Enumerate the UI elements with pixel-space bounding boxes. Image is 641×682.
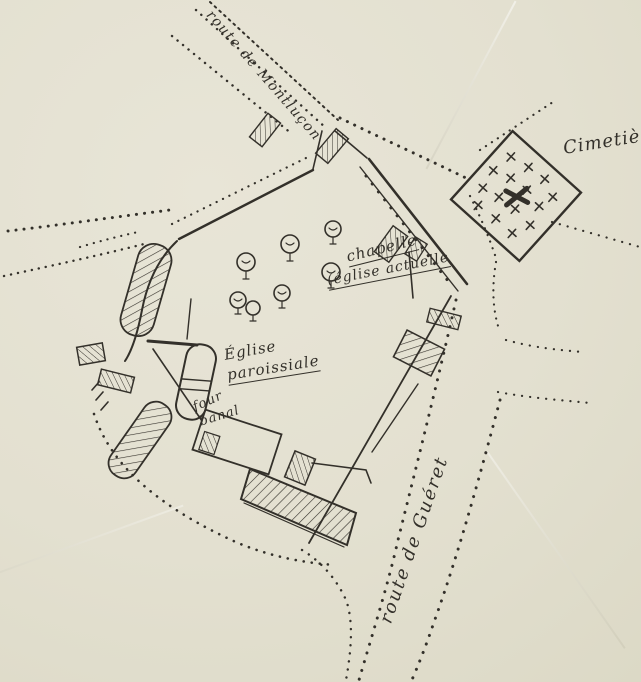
building-east-hut-large xyxy=(393,330,444,376)
building-west-hut-2 xyxy=(98,369,135,393)
road-east-branches xyxy=(493,222,640,403)
tree-icon xyxy=(325,221,341,244)
building-southwest-long xyxy=(103,396,177,484)
building-south-hut xyxy=(285,451,316,485)
building-northeast-hut-1 xyxy=(249,113,280,146)
sketch-map-canvas xyxy=(0,0,641,682)
tree-icon xyxy=(281,235,299,261)
building-west-hut-1 xyxy=(77,343,106,365)
tree-icon xyxy=(246,301,260,321)
building-east-hut-small xyxy=(427,308,461,329)
boundary-dots-north xyxy=(172,158,306,224)
tree-icon xyxy=(237,253,255,279)
village-trees xyxy=(230,221,341,321)
building-northwest-long xyxy=(117,240,176,340)
tree-icon xyxy=(274,285,290,308)
tree-icon xyxy=(230,292,246,314)
road-northeast xyxy=(340,100,556,258)
